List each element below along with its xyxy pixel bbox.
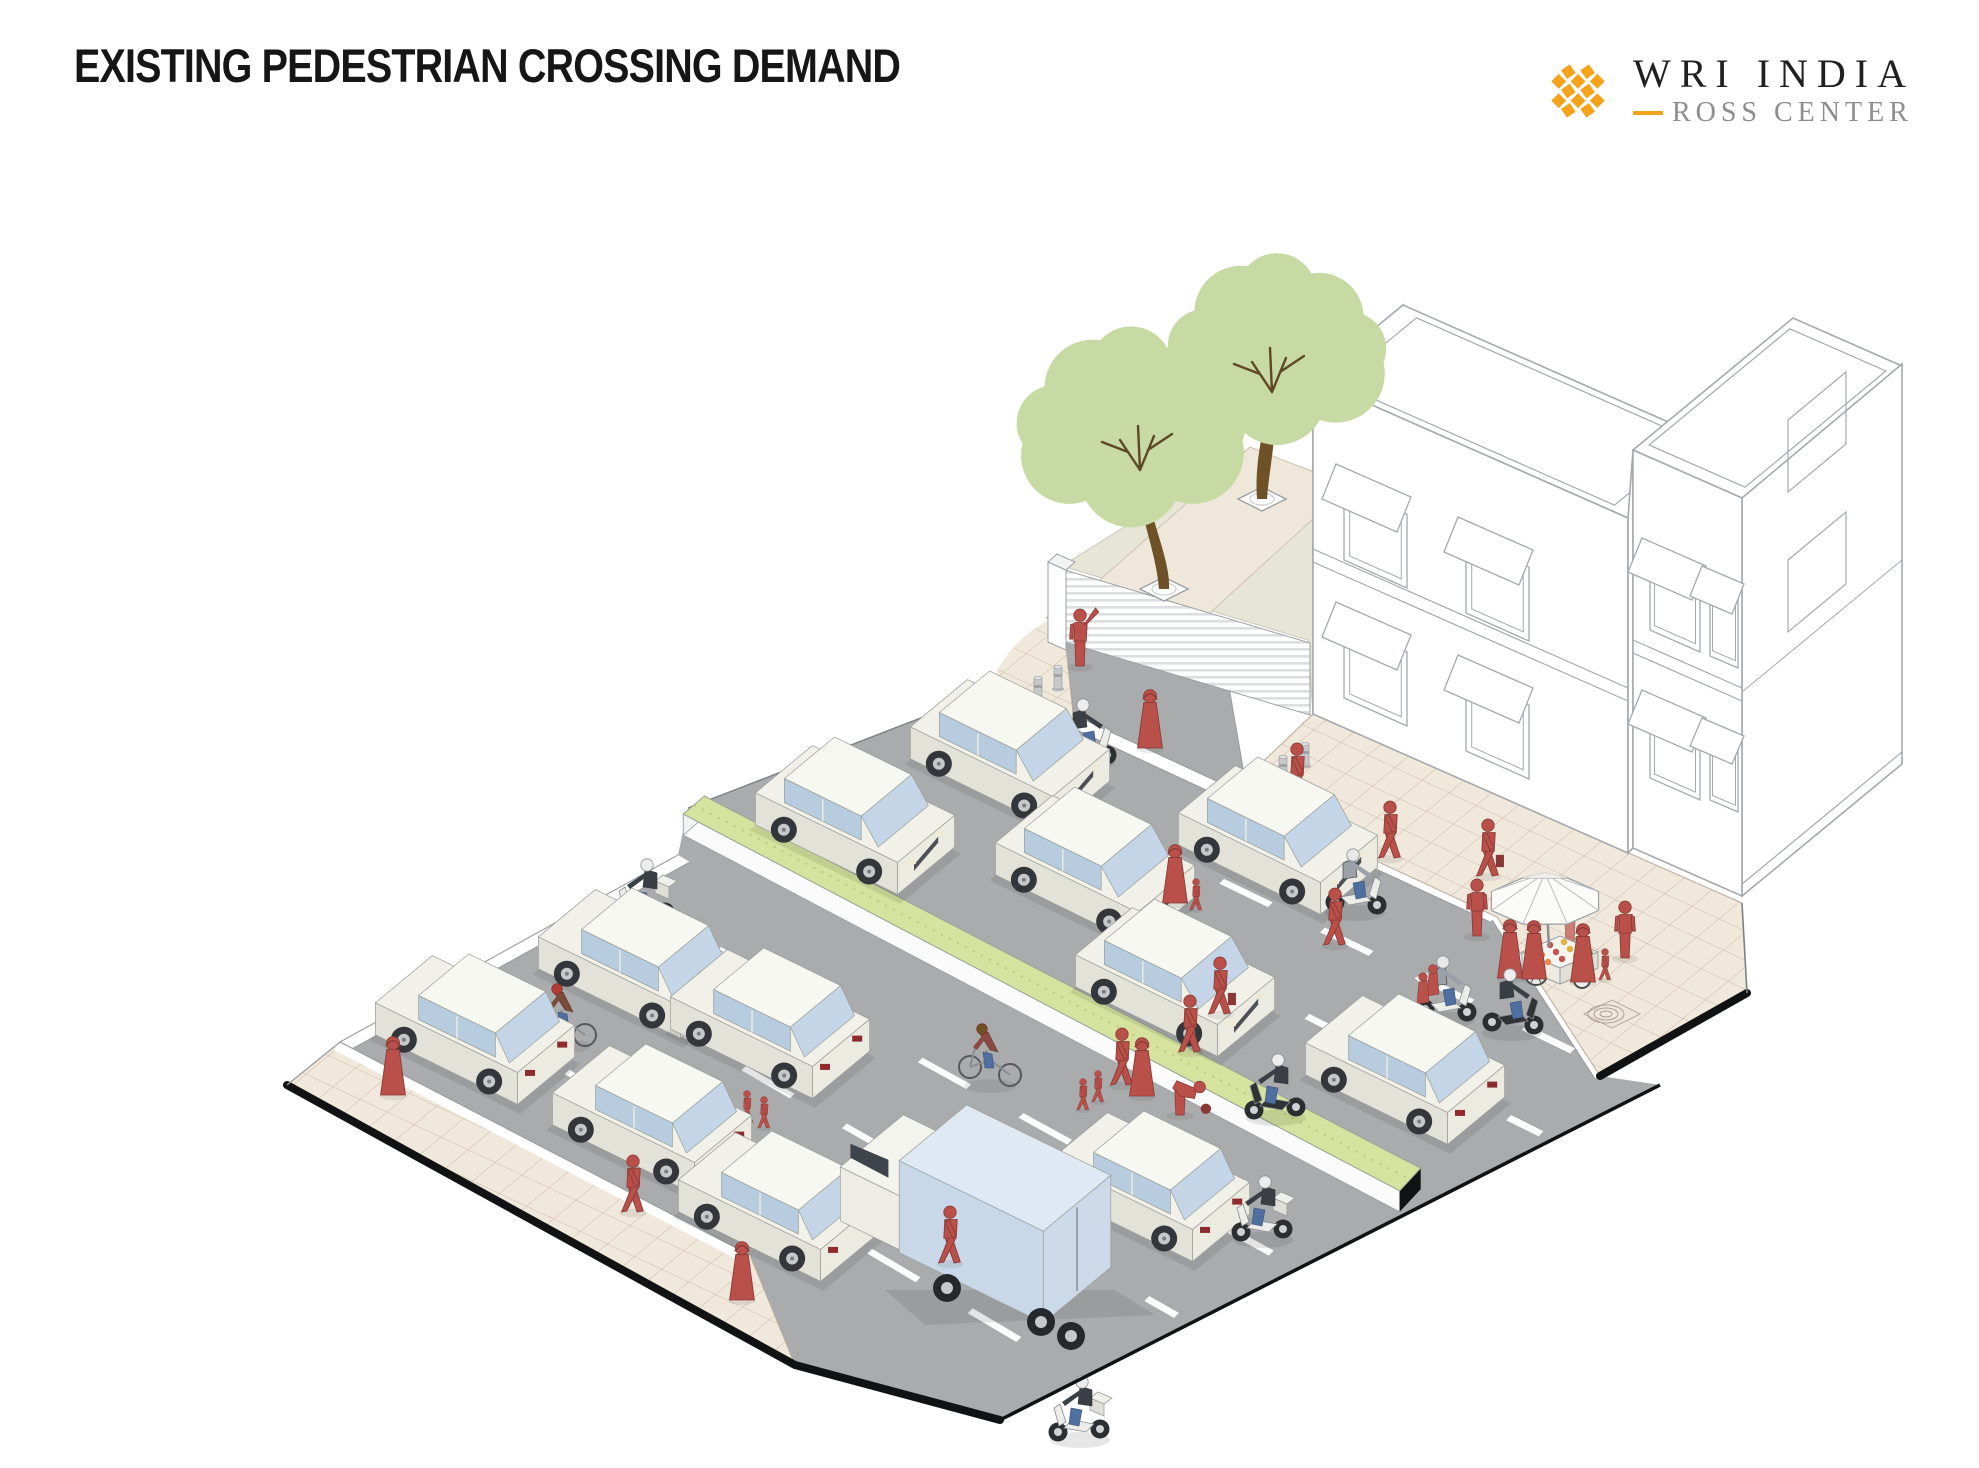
street-scene-illustration (0, 0, 1979, 1468)
gate-pillar (1048, 562, 1066, 650)
bollard (1052, 665, 1064, 691)
